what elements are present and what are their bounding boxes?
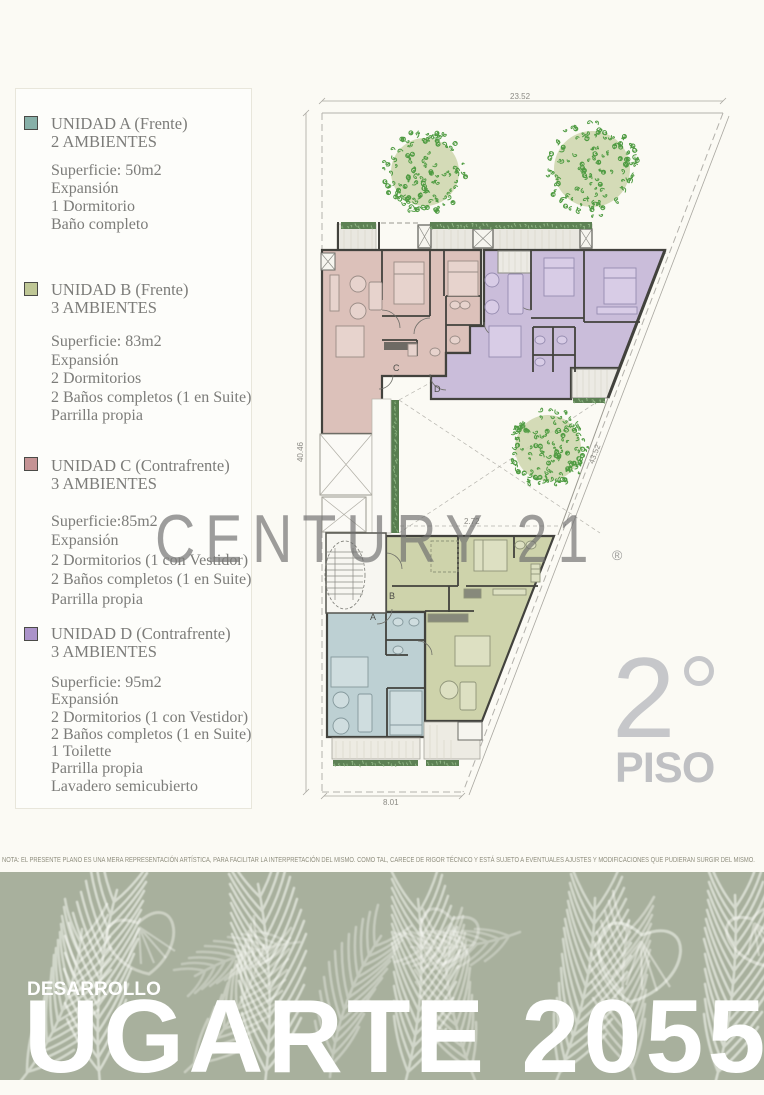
svg-text:®: ® <box>612 547 623 563</box>
svg-text:40.46: 40.46 <box>296 441 305 462</box>
svg-text:43.52: 43.52 <box>587 443 603 465</box>
svg-text:23.52: 23.52 <box>510 92 531 101</box>
svg-text:8.01: 8.01 <box>383 798 399 807</box>
svg-text:C: C <box>393 363 400 373</box>
svg-text:B: B <box>389 591 395 601</box>
svg-text:D: D <box>434 384 441 394</box>
